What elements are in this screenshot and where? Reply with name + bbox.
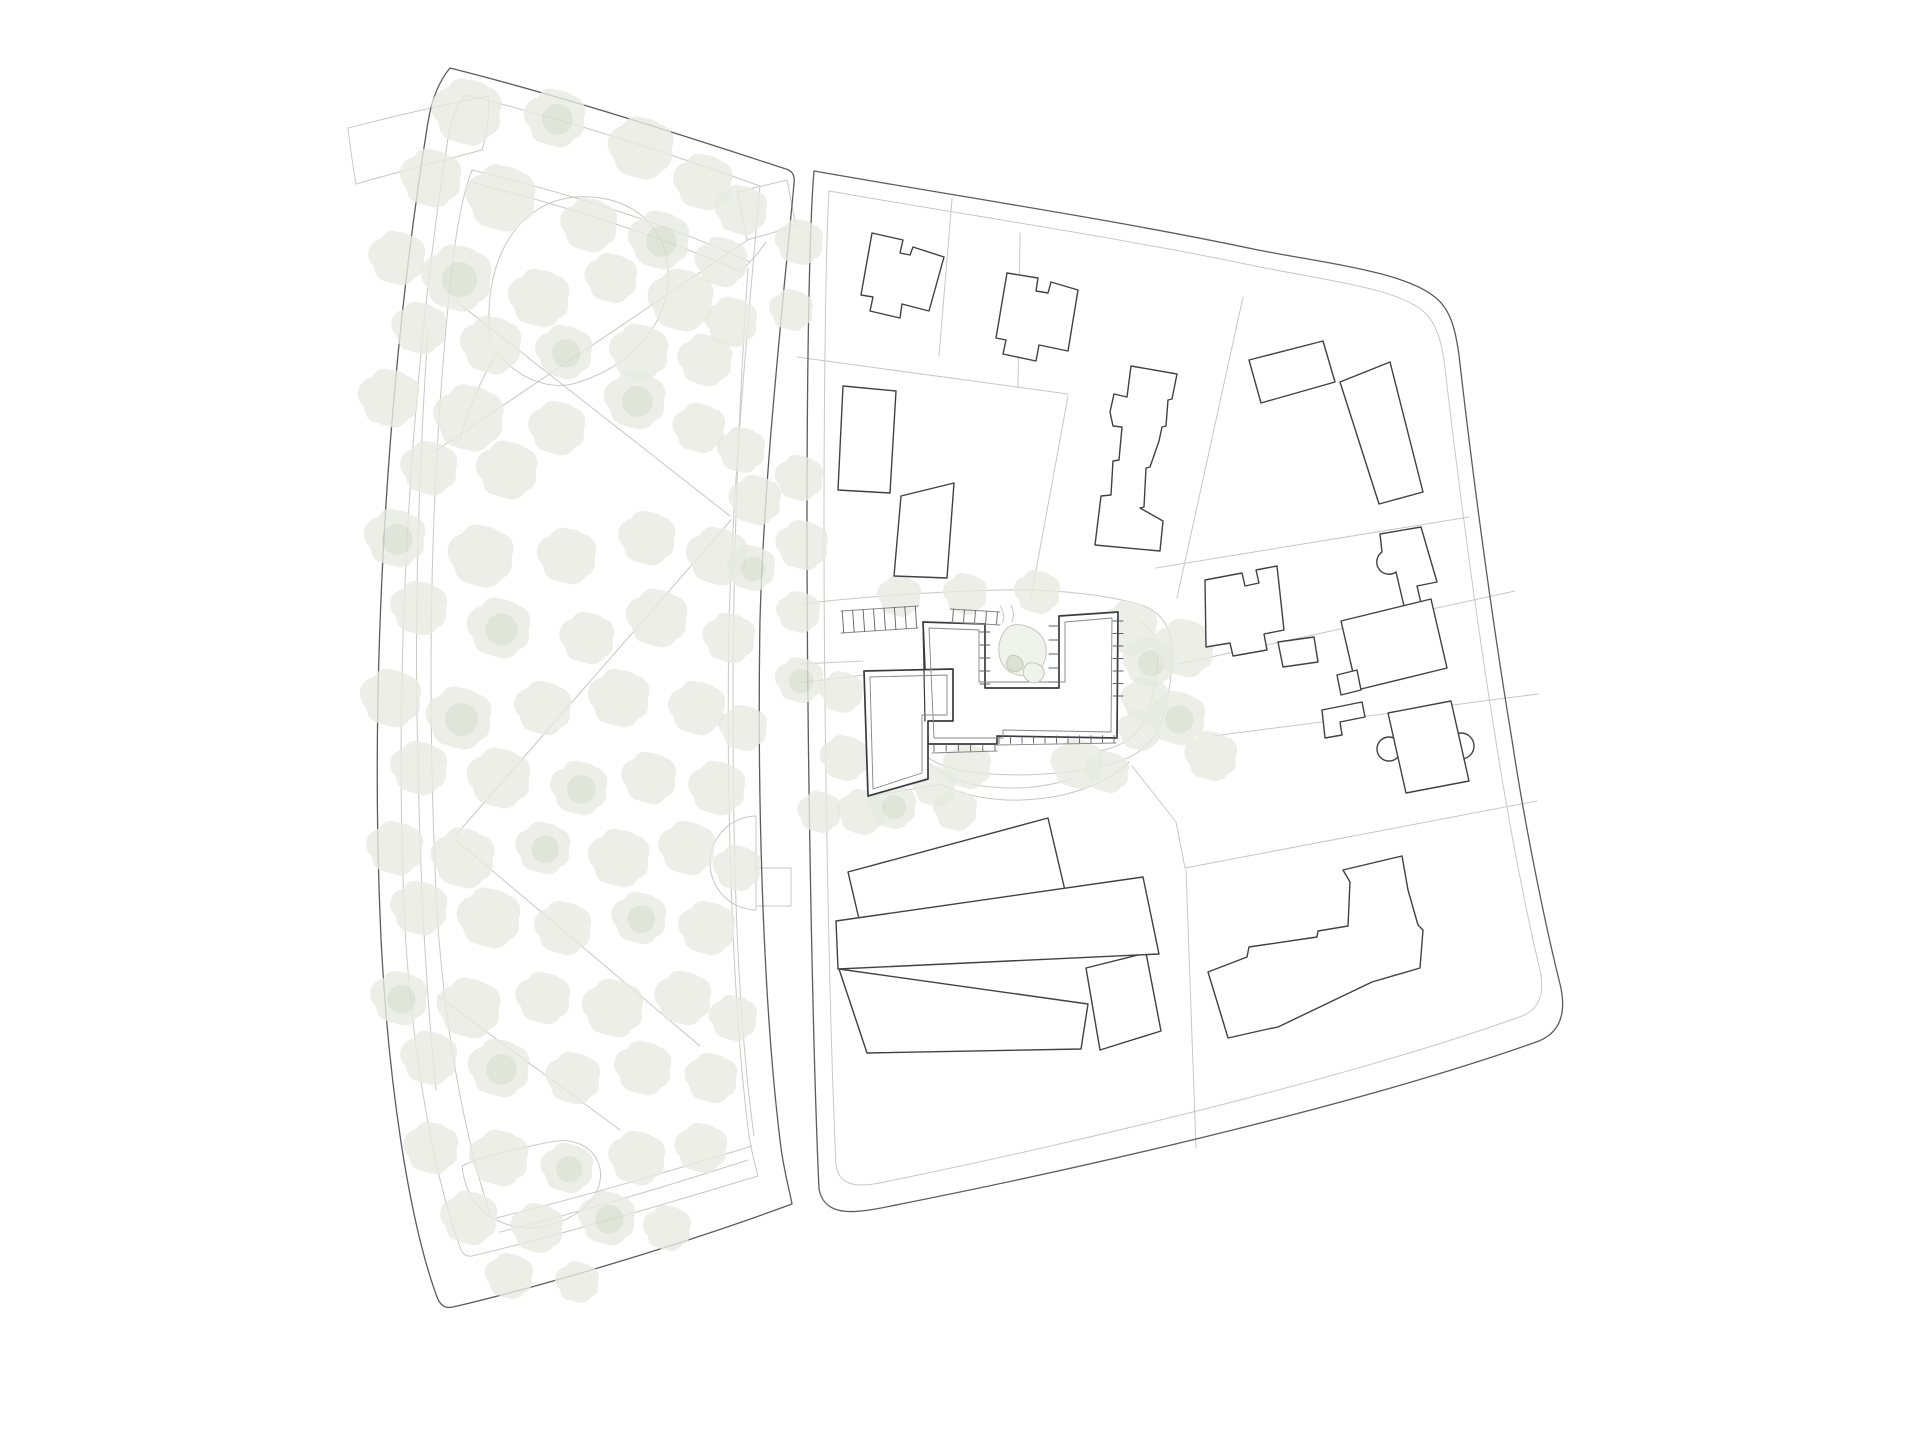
tree: [468, 1039, 530, 1098]
tree: [588, 829, 650, 888]
building-apse-house: [1388, 701, 1469, 793]
courtyard-entry-1: [1000, 606, 1004, 623]
tree: [431, 78, 501, 145]
tree: [364, 509, 426, 568]
tree: [582, 979, 644, 1038]
tree: [775, 455, 823, 501]
parcel-line-9: [1176, 822, 1185, 868]
tree: [608, 117, 674, 180]
tree: [476, 441, 538, 500]
tree: [688, 761, 745, 816]
tree: [775, 520, 828, 570]
tree: [440, 1191, 497, 1246]
tree: [400, 149, 462, 208]
tree: [433, 384, 503, 451]
building-cross-mid: [1205, 566, 1284, 656]
tree: [658, 821, 715, 876]
tree: [390, 581, 447, 636]
parcel-line-1: [797, 357, 1068, 394]
tree: [1014, 570, 1060, 614]
tree: [769, 289, 813, 331]
tree: [775, 657, 823, 703]
tree: [776, 591, 820, 633]
tree: [431, 828, 495, 889]
tree: [515, 972, 570, 1025]
site-plan-drawing: [0, 0, 1920, 1440]
tree: [469, 1130, 528, 1187]
building-house-nw-2: [996, 273, 1078, 361]
tree: [448, 525, 514, 588]
tree: [643, 1205, 691, 1251]
tree: [467, 598, 531, 659]
site-plan-page: [0, 0, 1920, 1440]
tree: [400, 1031, 457, 1086]
tree: [702, 613, 755, 663]
tree: [528, 401, 585, 456]
tree: [713, 845, 761, 891]
park-cell-line-4: [348, 128, 356, 184]
tree: [626, 589, 688, 648]
tree: [588, 669, 650, 728]
building-small-rect: [1278, 637, 1318, 667]
building-jagged-slab: [1095, 366, 1177, 551]
building-slab-annex: [1086, 953, 1161, 1050]
building-slab-c: [839, 969, 1088, 1053]
building-mid-rect-annex: [1337, 670, 1361, 695]
tree: [819, 671, 863, 713]
courtyard-pond-small: [1023, 663, 1044, 683]
tree: [514, 681, 571, 736]
tree: [608, 1131, 665, 1186]
tree: [820, 735, 868, 781]
tree: [943, 573, 987, 615]
tree: [877, 575, 921, 617]
tree: [400, 441, 457, 496]
building-z-house-upper: [838, 386, 896, 493]
parcel-line-11: [1132, 766, 1176, 822]
tree: [403, 1122, 458, 1175]
tree: [358, 369, 420, 428]
building-l-bar: [1340, 362, 1423, 504]
tree: [467, 748, 531, 809]
parcel-line-10: [1185, 801, 1537, 868]
tree: [797, 791, 841, 833]
tree: [545, 1052, 600, 1105]
tree: [370, 971, 427, 1026]
tree: [485, 1253, 533, 1299]
building-z-house-lower: [894, 483, 954, 578]
tree: [540, 1143, 593, 1193]
tree: [510, 1203, 563, 1253]
parcel-line-12: [1186, 870, 1196, 1148]
tree: [457, 888, 521, 949]
tree: [677, 334, 732, 387]
tree: [390, 881, 447, 936]
tree: [674, 1123, 727, 1173]
parcel-line-8: [1213, 694, 1538, 736]
tree: [611, 892, 666, 945]
tree: [578, 1191, 635, 1246]
building-small-l: [1322, 702, 1365, 738]
tree: [360, 669, 422, 728]
tree: [584, 253, 637, 303]
parcel-line-3: [1031, 396, 1068, 598]
tree: [678, 901, 735, 956]
tree: [560, 198, 617, 253]
courtyard-east-windows: [1049, 626, 1059, 682]
tree: [460, 316, 522, 375]
tree: [368, 231, 425, 286]
tree: [537, 528, 596, 585]
tree: [535, 325, 592, 380]
tree: [654, 971, 711, 1026]
parcel-line-4: [1177, 297, 1243, 598]
courtyard-entry-2: [1011, 605, 1013, 622]
tree: [604, 371, 666, 430]
tree: [390, 741, 447, 796]
tree: [775, 219, 823, 265]
tree: [366, 821, 423, 876]
parcel-line-5: [939, 199, 952, 356]
tree: [555, 1261, 599, 1303]
tree: [508, 269, 570, 328]
tree: [628, 211, 690, 270]
tree: [709, 995, 757, 1041]
tree: [550, 761, 607, 816]
building-t-house: [1208, 856, 1423, 1038]
tree: [559, 612, 614, 665]
tree: [668, 681, 725, 736]
tree: [515, 822, 570, 875]
tree: [618, 511, 675, 566]
tree: [717, 427, 765, 473]
tree: [648, 269, 714, 332]
tree: [614, 1041, 671, 1096]
tree: [426, 687, 492, 750]
tree: [524, 89, 586, 148]
tree: [437, 978, 501, 1039]
building-l-rect: [1249, 341, 1335, 403]
tree: [609, 324, 668, 381]
building-round-notch: [1377, 527, 1437, 606]
building-house-nw-1: [861, 233, 944, 318]
tree: [684, 1053, 737, 1103]
tree: [465, 164, 535, 231]
tree: [621, 752, 676, 805]
